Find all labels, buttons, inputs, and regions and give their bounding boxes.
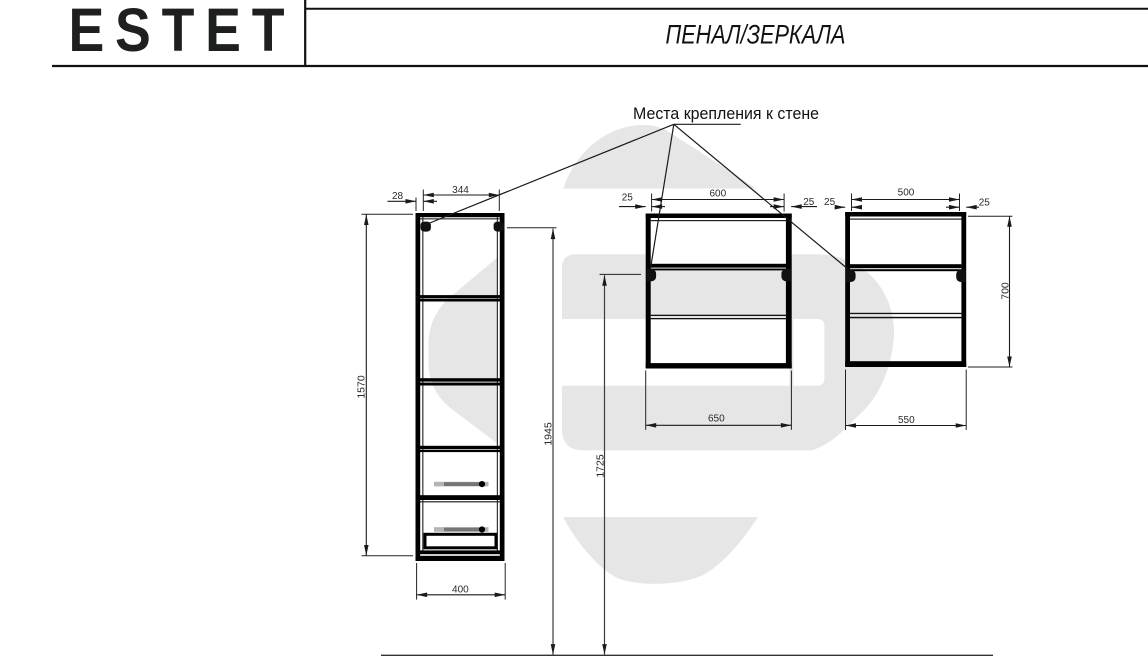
svg-text:600: 600 [709,189,726,200]
svg-text:25: 25 [824,197,836,208]
svg-text:650: 650 [708,413,725,424]
svg-text:1945: 1945 [542,422,554,446]
svg-text:400: 400 [452,584,469,595]
svg-text:1725: 1725 [595,454,607,478]
svg-text:500: 500 [898,188,915,199]
svg-text:ESTET: ESTET [68,0,284,65]
svg-text:Места крепления к стене: Места крепления к стене [633,105,819,123]
svg-text:25: 25 [979,198,991,209]
svg-text:25: 25 [622,192,634,203]
svg-text:344: 344 [452,185,469,196]
svg-text:25: 25 [803,197,815,208]
svg-text:1570: 1570 [356,375,368,399]
svg-text:ПЕНАЛ/ЗЕРКАЛА: ПЕНАЛ/ЗЕРКАЛА [666,20,846,50]
svg-text:28: 28 [392,191,404,202]
svg-text:700: 700 [999,282,1011,300]
svg-text:550: 550 [898,415,915,426]
